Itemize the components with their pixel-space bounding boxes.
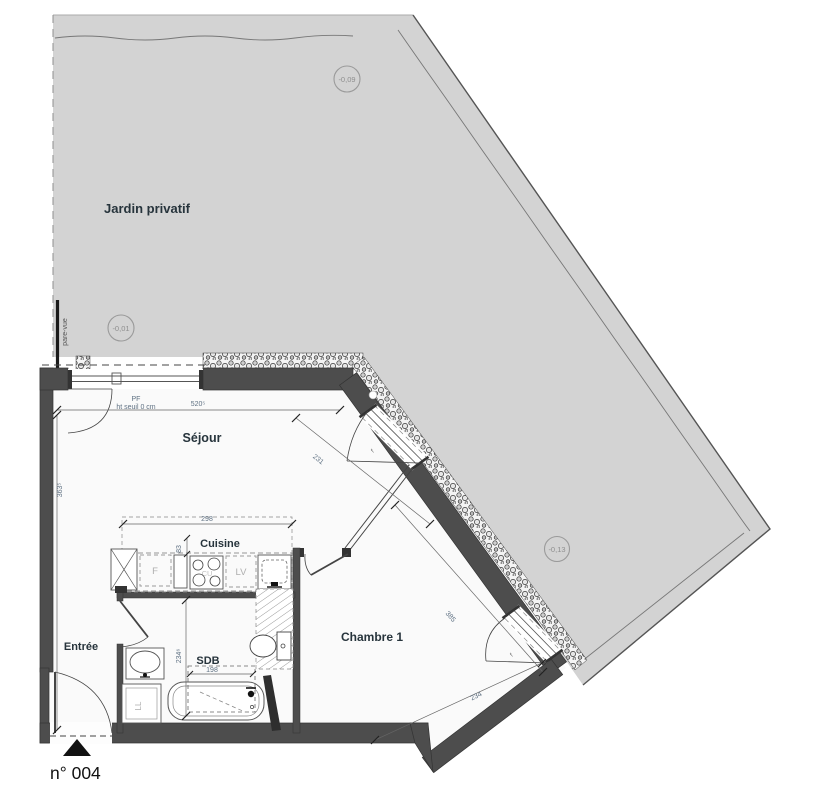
dim-label: 520⁵ (191, 401, 206, 408)
hob-icon: CU (190, 556, 223, 589)
utility-box-icon (111, 549, 137, 593)
dishwasher-label: LV (236, 567, 248, 578)
kitchen-sink-icon (258, 555, 291, 589)
level-value: -0,09 (338, 75, 355, 84)
pf-threshold-label: ht seuil 0 cm (116, 404, 155, 411)
gravel-patch-parevue (76, 356, 90, 370)
dim-label: 198 (206, 667, 218, 674)
tub-faucet (248, 691, 254, 697)
unit-marker: n° 004 (50, 739, 101, 783)
dim-label: 83 (176, 545, 183, 553)
window-jamb (68, 370, 72, 389)
wall-top-right (203, 368, 353, 390)
room-label-chambre: Chambre 1 (341, 630, 403, 644)
dim-label: 298 (201, 516, 213, 523)
unit-number: n° 004 (50, 763, 101, 783)
room-label-sejour: Séjour (183, 431, 222, 445)
room-label-entree: Entrée (64, 641, 98, 653)
level-value: -0,13 (548, 545, 565, 554)
kitchen-cabinet (174, 555, 187, 588)
garden-label: Jardin privatif (104, 201, 191, 216)
level-value: -0,01 (112, 324, 129, 333)
wall-top-left (40, 368, 68, 390)
dim-label: 363⁵ (57, 483, 64, 498)
washing-machine-icon: LL (122, 684, 161, 723)
wall-left (40, 368, 53, 672)
washer-label: LL (134, 701, 143, 710)
gravel-strip-top (203, 353, 363, 369)
washbasin-icon (126, 648, 164, 679)
partition-sdb-chambre (293, 548, 300, 733)
room-label-cuisine: Cuisine (200, 538, 240, 550)
pare-vue-label: pare-vue (62, 318, 69, 346)
pf-label: PF (132, 396, 141, 403)
window-band (68, 369, 203, 389)
hob-label: CU (202, 569, 213, 578)
window-jamb (199, 370, 203, 389)
entrance-opening (50, 722, 112, 744)
downspout-dot (369, 391, 377, 399)
floor-plan-drawing: Jardin privatif -0,09 -0,01 -0,13 pare-v… (0, 0, 827, 800)
partition-sdb-west-upper (117, 592, 123, 601)
room-label-sdb: SDB (196, 655, 219, 667)
floor-plan-page: Jardin privatif -0,09 -0,01 -0,13 pare-v… (0, 0, 827, 800)
dim-label: 234⁶ (176, 649, 183, 664)
fridge-label: F (152, 566, 158, 577)
